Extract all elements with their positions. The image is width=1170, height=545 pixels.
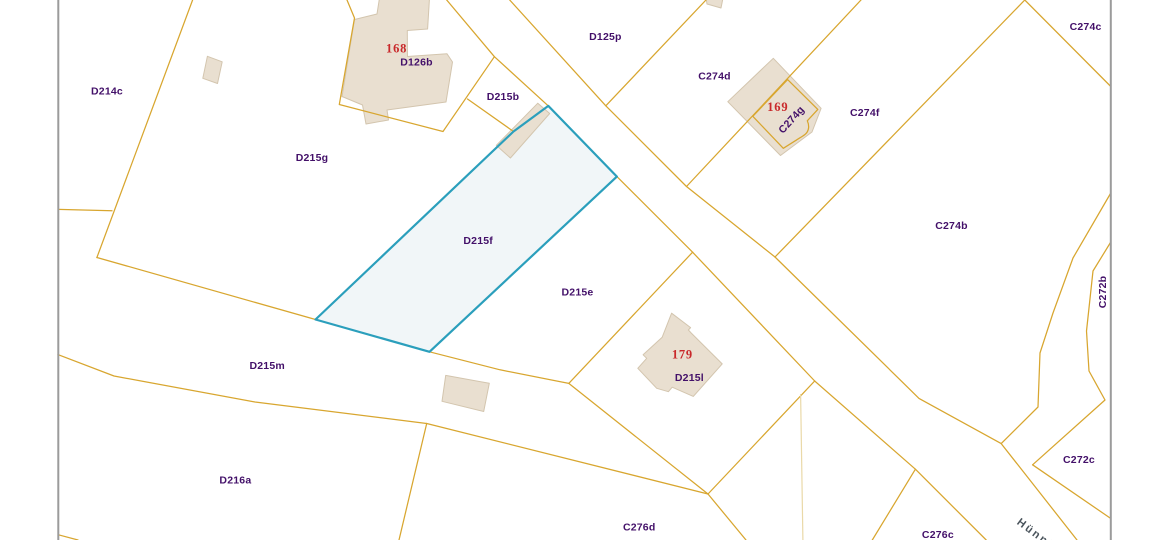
svg-text:D215f: D215f (463, 235, 493, 247)
svg-text:179: 179 (672, 348, 693, 362)
svg-text:C276c: C276c (922, 529, 954, 540)
svg-text:D215e: D215e (562, 287, 594, 299)
svg-text:D125p: D125p (589, 31, 622, 43)
svg-text:C276d: C276d (623, 522, 656, 534)
svg-text:C272b: C272b (1097, 276, 1109, 309)
svg-text:C272c: C272c (1063, 454, 1095, 466)
svg-text:D215m: D215m (249, 360, 284, 372)
svg-text:D216a: D216a (219, 475, 251, 487)
svg-text:C274d: C274d (698, 70, 731, 82)
svg-text:D215l: D215l (675, 372, 704, 384)
svg-text:168: 168 (386, 41, 407, 55)
svg-text:D126b: D126b (400, 56, 433, 68)
svg-text:C274f: C274f (850, 107, 880, 119)
svg-text:D215b: D215b (487, 91, 520, 103)
svg-text:C274b: C274b (935, 220, 968, 232)
svg-text:C274c: C274c (1070, 21, 1102, 33)
svg-text:169: 169 (767, 100, 788, 114)
svg-text:D214c: D214c (91, 86, 123, 98)
svg-text:D215g: D215g (296, 152, 329, 164)
